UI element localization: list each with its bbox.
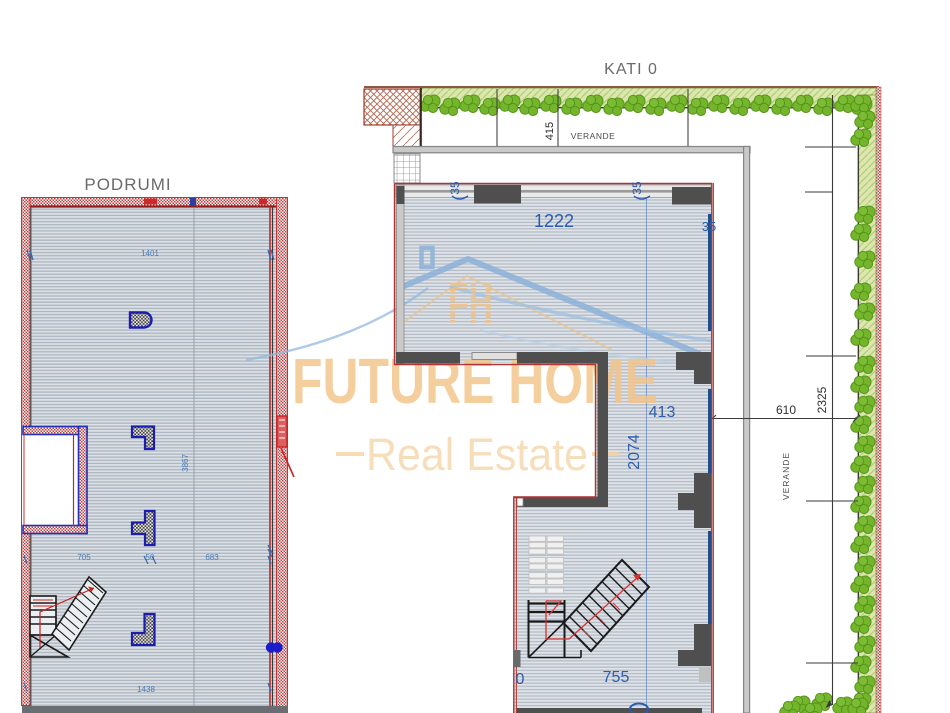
- svg-text:610: 610: [776, 403, 796, 417]
- svg-text:705: 705: [77, 553, 91, 562]
- svg-text:3867: 3867: [181, 454, 190, 472]
- svg-text:KATI 0: KATI 0: [604, 61, 658, 78]
- svg-text:Real Estate: Real Estate: [366, 429, 588, 480]
- svg-text:2325: 2325: [815, 386, 829, 413]
- svg-text:415: 415: [544, 122, 556, 140]
- svg-text:1222: 1222: [534, 211, 574, 231]
- svg-text:35: 35: [630, 181, 644, 195]
- svg-text:FH: FH: [448, 271, 493, 336]
- svg-text:2074: 2074: [626, 434, 643, 470]
- svg-text:VERANDE: VERANDE: [571, 131, 616, 141]
- svg-text:1438: 1438: [137, 685, 155, 694]
- svg-text:PODRUMI: PODRUMI: [84, 175, 171, 194]
- svg-text:755: 755: [603, 669, 630, 686]
- svg-text:1401: 1401: [141, 249, 159, 258]
- svg-text:683: 683: [205, 553, 219, 562]
- svg-text:VERANDE: VERANDE: [781, 452, 791, 500]
- svg-text:413: 413: [649, 404, 676, 421]
- svg-text:0: 0: [516, 671, 525, 688]
- svg-text:35: 35: [702, 219, 716, 234]
- svg-text:35: 35: [448, 181, 462, 195]
